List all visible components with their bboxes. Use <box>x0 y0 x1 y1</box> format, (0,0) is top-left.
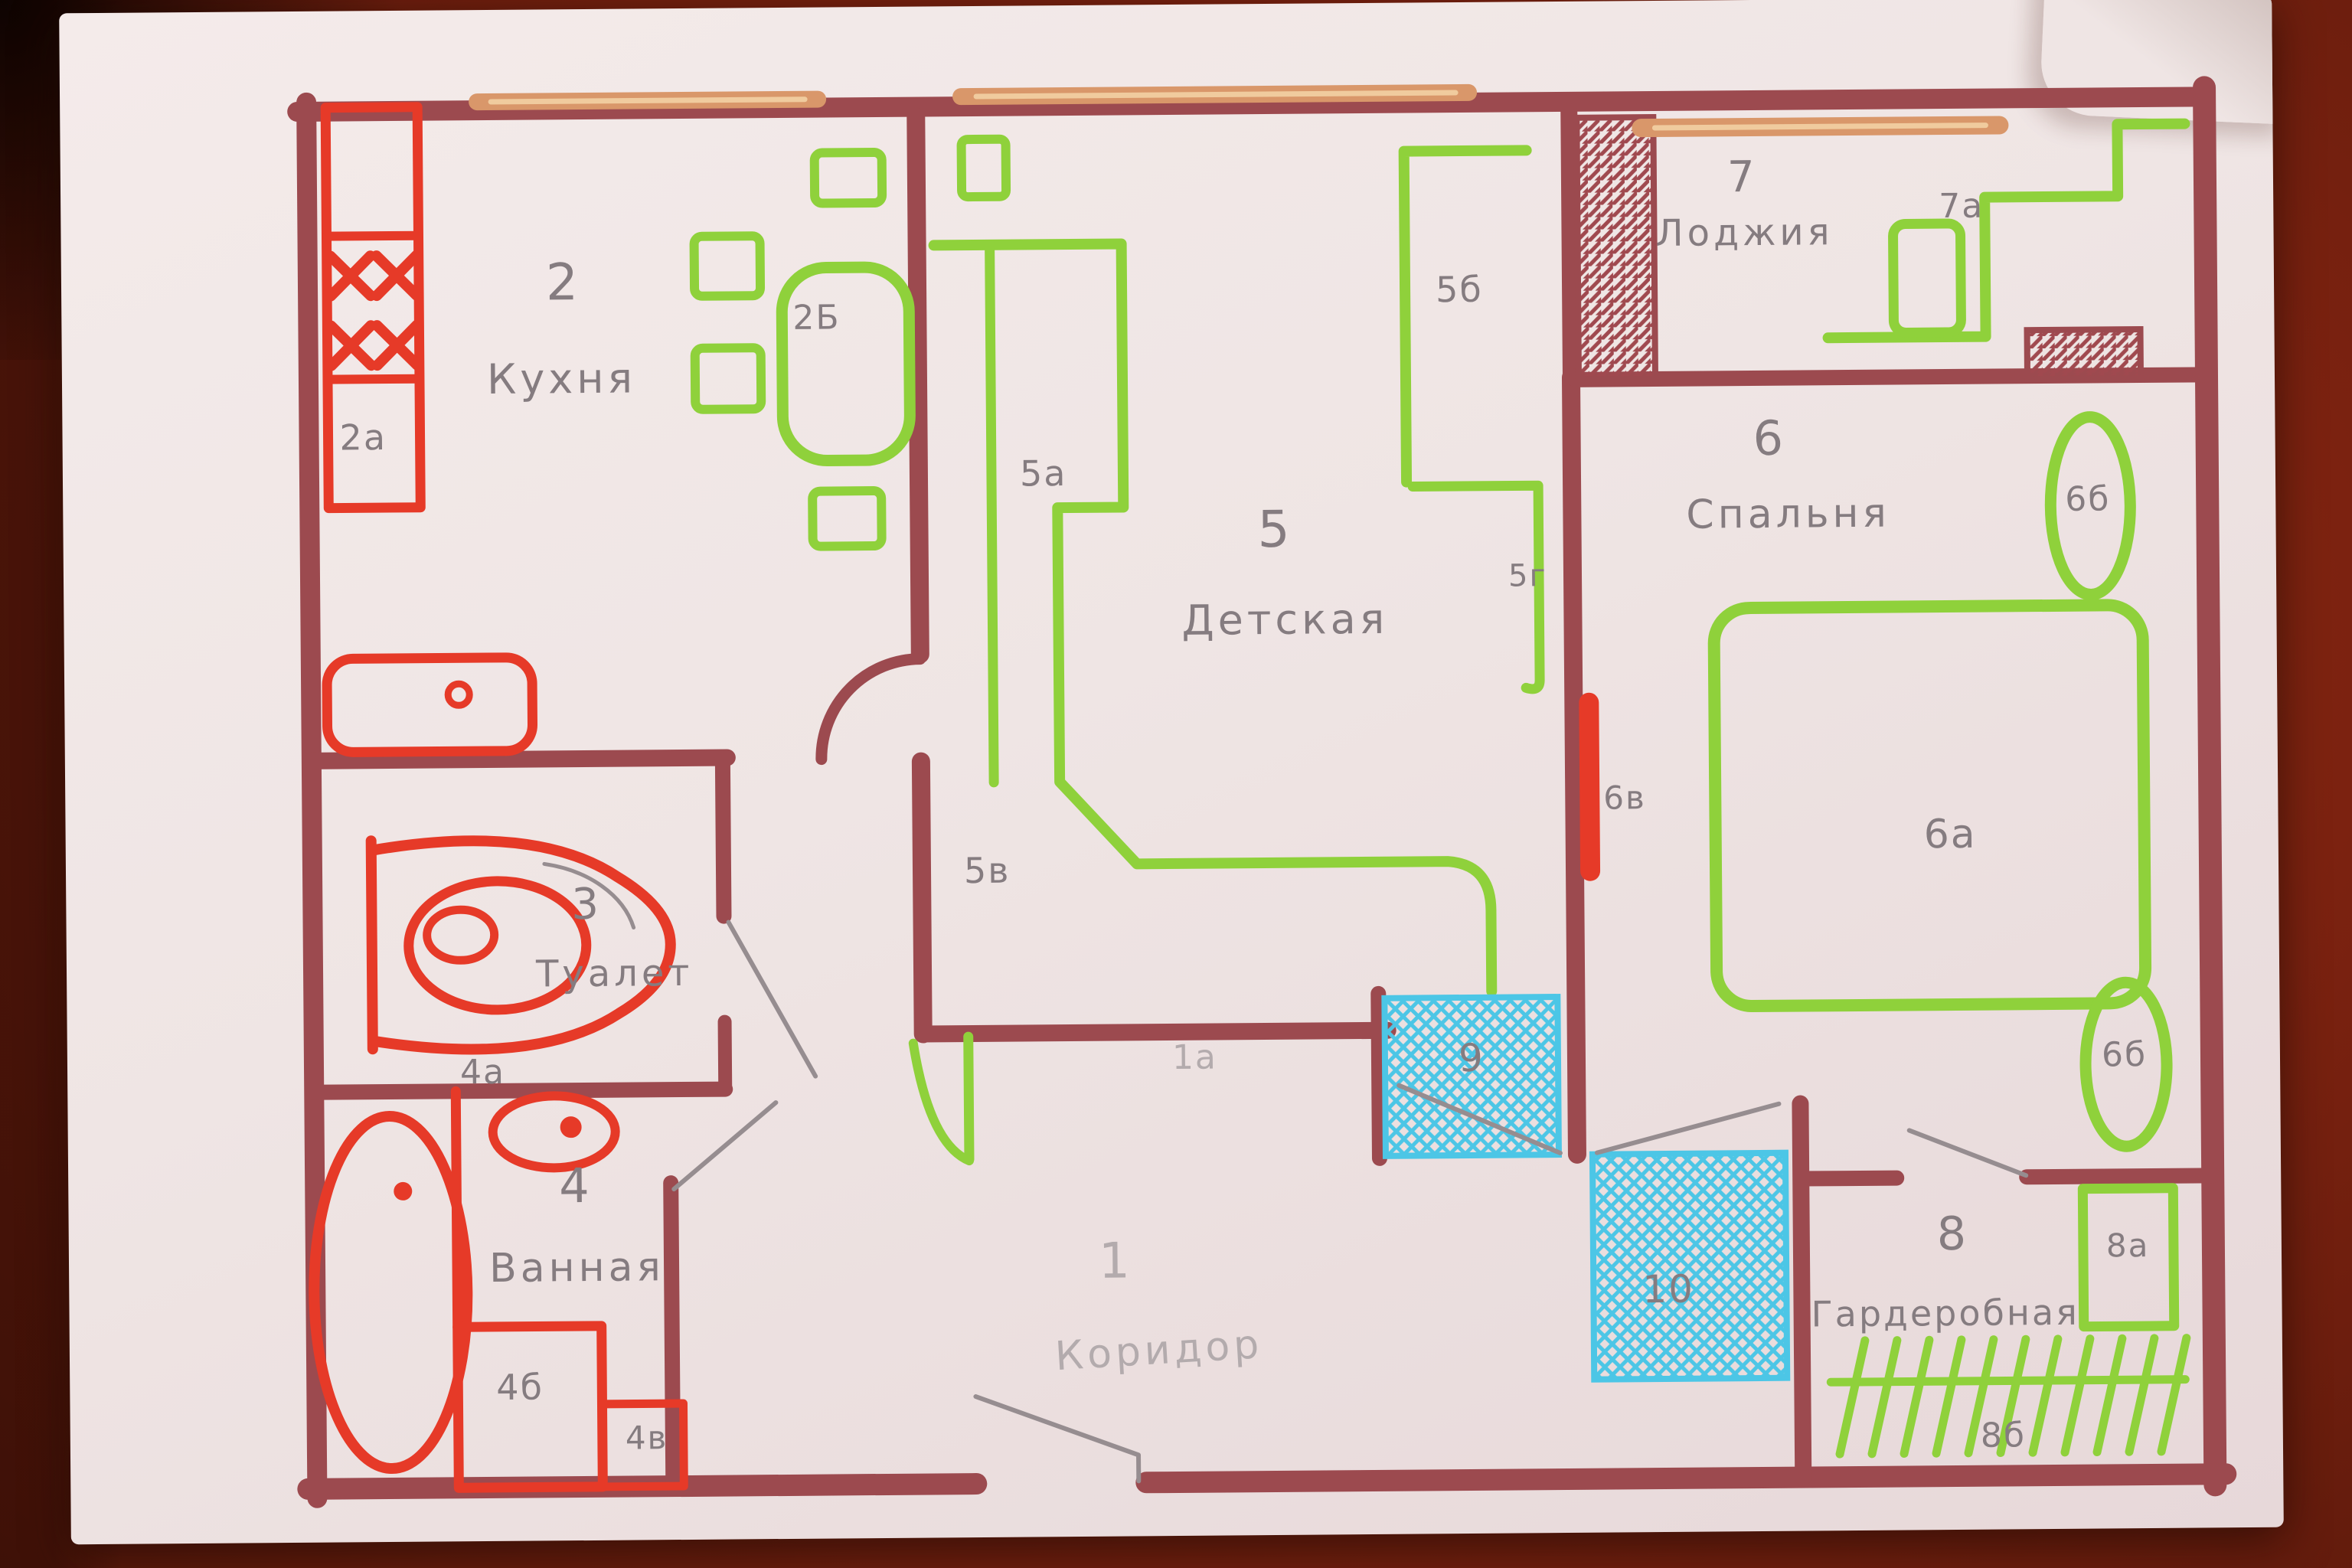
loggia-counter <box>1826 124 2186 338</box>
bathroom-sink-icon <box>456 1090 616 1328</box>
zone-10 <box>1592 1153 1787 1380</box>
label-room-6-number: 6 <box>1753 415 1785 462</box>
kitchen-table-and-chairs <box>694 152 911 547</box>
dining-table <box>782 267 910 461</box>
burner-icon <box>331 256 371 296</box>
wall-shelf <box>962 139 1007 197</box>
floor-plan-paper: 1 Коридор 1а 2 Кухня 2а 2Б 3 Туалет 4а 4… <box>59 0 2284 1544</box>
bedroom-door-swing <box>1596 1104 1779 1153</box>
label-zone-9: 9 <box>1459 1039 1485 1077</box>
entry-door-swing <box>975 1395 1138 1482</box>
label-1a: 1а <box>1172 1041 1217 1075</box>
bathroom-door-swing <box>673 1102 776 1189</box>
label-4v: 4в <box>626 1422 668 1454</box>
brick-hatch-block-loggia-right <box>2027 329 2141 379</box>
label-room-2-name: Кухня <box>487 358 636 400</box>
kitchen-door-arc <box>821 659 921 759</box>
label-room-3-name: Туалет <box>536 955 694 993</box>
label-5v: 5в <box>964 853 1011 888</box>
label-6a: 6а <box>1923 815 1976 855</box>
label-room-7-name: Лоджия <box>1655 214 1833 252</box>
burner-icon <box>331 325 371 365</box>
toilet-door-swing <box>729 922 816 1077</box>
label-room-8-name: Гардеробная <box>1811 1295 2079 1332</box>
bed <box>1713 605 2145 1006</box>
label-6v: 6в <box>1603 782 1646 814</box>
label-2b: 2Б <box>792 301 841 335</box>
children-closet-5b <box>1404 150 1540 690</box>
label-4a: 4а <box>460 1056 505 1089</box>
label-5g: 5г <box>1508 560 1547 591</box>
chair <box>694 236 761 296</box>
label-room-4-number: 4 <box>559 1162 591 1210</box>
label-room-3-number: 3 <box>571 884 600 926</box>
chair <box>812 491 882 547</box>
label-8b: 8б <box>1981 1419 2026 1452</box>
chair <box>815 152 883 204</box>
label-8a: 8а <box>2106 1230 2150 1262</box>
chair <box>695 348 762 410</box>
label-room-4-name: Ванная <box>489 1247 665 1289</box>
blue-hatch-squares <box>1384 995 1787 1381</box>
label-room-5-number: 5 <box>1257 505 1292 555</box>
label-room-5-name: Детская <box>1181 599 1388 642</box>
kitchen-sink-icon <box>327 658 533 753</box>
bathtub-icon <box>313 1116 469 1469</box>
label-room-6-name: Спальня <box>1686 494 1890 535</box>
label-zone-10: 10 <box>1642 1270 1694 1309</box>
burner-icon <box>377 325 416 365</box>
label-room-1-number: 1 <box>1099 1236 1132 1285</box>
burner-icon <box>377 256 416 296</box>
label-2a: 2а <box>339 420 387 455</box>
label-5a: 5а <box>1020 456 1067 491</box>
label-6b-top: 6б <box>2065 482 2110 516</box>
radiator-6v <box>1589 703 1590 871</box>
label-room-7-number: 7 <box>1727 156 1756 199</box>
children-door <box>913 1037 969 1161</box>
toilet-icon <box>371 838 671 1050</box>
brick-hatch-block-loggia-left <box>1576 117 1655 380</box>
label-room-1-name: Коридор <box>1054 1325 1264 1377</box>
label-5b: 5б <box>1436 272 1483 307</box>
loggia-stool <box>1893 224 1961 333</box>
label-room-8-number: 8 <box>1937 1211 1968 1257</box>
wardrobe-door-swing <box>1909 1129 2026 1176</box>
label-6b-bottom: 6б <box>2102 1038 2147 1072</box>
floor-plan: 1 Коридор 1а 2 Кухня 2а 2Б 3 Туалет 4а 4… <box>59 0 2284 1544</box>
label-7a: 7а <box>1939 190 1984 224</box>
label-4b: 4б <box>496 1369 544 1404</box>
label-room-2-number: 2 <box>546 257 580 308</box>
